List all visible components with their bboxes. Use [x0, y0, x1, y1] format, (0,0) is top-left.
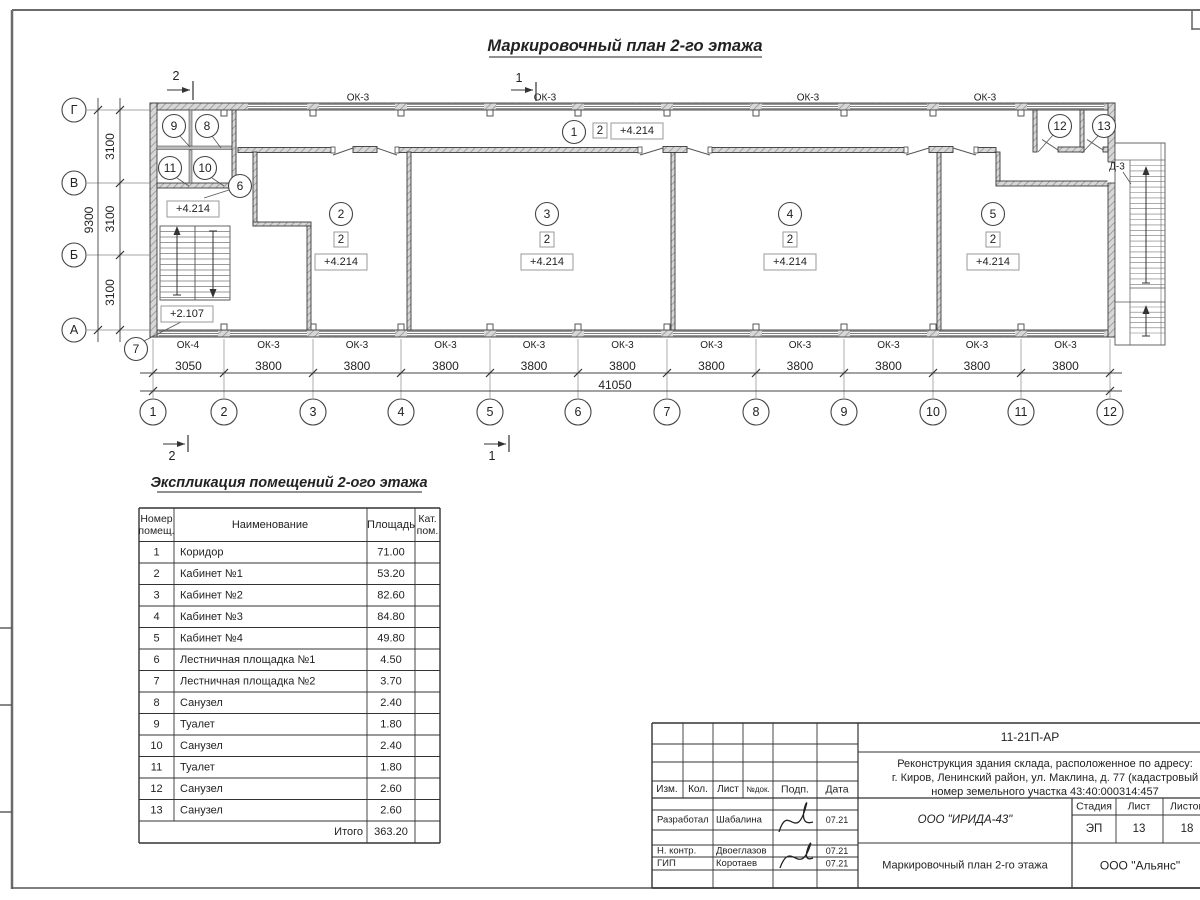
window-mark: ОК-3	[966, 340, 989, 351]
person-date: 07.21	[826, 815, 849, 825]
room-area-cell: 3.70	[380, 675, 401, 687]
door-lintel	[663, 147, 687, 153]
room-name-cell: Санузел	[180, 697, 223, 709]
room-area-cell: 1.80	[380, 718, 401, 730]
leader-line	[204, 190, 229, 198]
partition-thin	[189, 150, 192, 183]
door-jamb	[395, 147, 399, 153]
window-mark: ОК-3	[1054, 340, 1077, 351]
mullion-post	[753, 110, 759, 116]
room-num-cell: 7	[153, 675, 159, 687]
partition	[157, 183, 236, 188]
window-mark: ОК-3	[611, 340, 634, 351]
room-num-cell: 12	[150, 783, 162, 795]
axis-letter: В	[70, 176, 78, 190]
mullion-post	[930, 324, 936, 330]
room-name-cell: Санузел	[180, 740, 223, 752]
col-header: Кат.	[418, 513, 436, 525]
axis-number: 6	[575, 405, 582, 419]
axis-number: 10	[926, 405, 940, 419]
rev-header: Изм.	[656, 784, 677, 795]
page-title: Маркировочный план 2-го этажа	[487, 37, 762, 55]
section-arrowhead	[525, 87, 533, 93]
axis-letter: Г	[71, 103, 78, 117]
window-mark: ОК-3	[257, 340, 280, 351]
room-area-cell: 84.80	[377, 611, 405, 623]
elevation-value: +4.214	[620, 125, 654, 137]
room-area-cell: 2.40	[380, 740, 401, 752]
col-header: помещ.	[138, 525, 174, 537]
rev-header: Подп.	[781, 784, 809, 796]
category-value: 2	[990, 234, 996, 246]
dim-value: 3800	[698, 359, 725, 373]
person-name: Шабалина	[716, 815, 763, 826]
mullion-post	[753, 324, 759, 330]
room-name-cell: Санузел	[180, 783, 223, 795]
customer-org: ООО "Альянс"	[1100, 859, 1180, 873]
category-value: 2	[787, 234, 793, 246]
window-mark: ОК-3	[347, 93, 370, 104]
room-area-cell: 82.60	[377, 589, 405, 601]
room-num-cell: 4	[153, 611, 159, 623]
drawing-title: Маркировочный план 2-го этажа	[882, 860, 1048, 872]
person-date: 07.21	[826, 859, 849, 869]
col-header: Номер	[140, 513, 172, 525]
window-mark: ОК-3	[346, 340, 369, 351]
axis-number: 9	[841, 405, 848, 419]
partition	[1103, 147, 1108, 152]
person-name: Коротаев	[716, 858, 757, 869]
room-name-cell: Кабинет №3	[180, 611, 243, 623]
col-header: пом.	[417, 525, 439, 537]
partition	[996, 152, 1000, 185]
stage-header: Листов	[1170, 801, 1200, 813]
section-mark-number: 2	[169, 449, 176, 463]
sheet-num: 13	[1133, 823, 1146, 835]
category-value: 2	[338, 234, 344, 246]
mullion-post	[664, 110, 670, 116]
stage-header: Лист	[1128, 801, 1151, 813]
door-lintel	[929, 147, 953, 153]
mullion-post	[398, 324, 404, 330]
mullion-post	[841, 110, 847, 116]
room-number: 11	[164, 161, 177, 175]
window-mark: ОК-3	[797, 93, 820, 104]
partition	[1033, 110, 1037, 152]
generated-drawing: Маркировочный план 2-го этажаЭкспликация…	[62, 37, 1200, 888]
leader-line	[1038, 135, 1053, 152]
door-leaf	[333, 148, 353, 155]
person-role: ГИП	[657, 858, 676, 869]
axis-number: 4	[398, 405, 405, 419]
section-arrowhead	[498, 441, 506, 447]
section-mark-number: 2	[173, 69, 180, 83]
corridor-wall	[976, 148, 996, 153]
door-lintel	[353, 147, 377, 153]
room-number: 8	[204, 119, 211, 133]
window-mark: ОК-4	[177, 340, 200, 351]
room-number: 12	[1053, 119, 1067, 133]
person-date: 07.21	[826, 846, 849, 856]
door-leaf	[687, 148, 710, 155]
dim-value: 3800	[344, 359, 371, 373]
elevation-value: +4.214	[976, 256, 1010, 268]
room-num-cell: 11	[151, 761, 162, 773]
mullion-post	[487, 324, 493, 330]
partition-thin	[189, 110, 192, 146]
room-area-cell: 71.00	[377, 546, 405, 558]
window-mark: ОК-3	[434, 340, 457, 351]
mullion-post	[487, 110, 493, 116]
schedule-title: Экспликация помещений 2-ого этажа	[150, 475, 427, 491]
drawing-sheet: Маркировочный план 2-го этажаЭкспликация…	[0, 0, 1200, 900]
room-number: 7	[133, 342, 140, 356]
corridor-wall	[397, 148, 640, 153]
section-arrowhead	[177, 441, 185, 447]
dim-value: 3800	[787, 359, 814, 373]
window-mark: ОК-3	[974, 93, 997, 104]
section-mark-number: 1	[489, 449, 496, 463]
col-header: Площадь	[367, 519, 415, 531]
room-area-cell: 2.60	[380, 804, 401, 816]
window-mark: ОК-3	[523, 340, 546, 351]
partition	[253, 222, 311, 226]
room-name-cell: Санузел	[180, 804, 223, 816]
door-jamb	[638, 147, 642, 153]
project-name: номер земельного участка 43:40:000314:45…	[931, 786, 1159, 798]
room-number: 1	[571, 125, 578, 139]
dim-total-value: 41050	[598, 378, 632, 392]
axis-number: 1	[150, 405, 157, 419]
rev-header: №док.	[746, 785, 769, 794]
category-value: 2	[544, 234, 550, 246]
dim-value: 3100	[103, 279, 117, 306]
room-number: 13	[1097, 119, 1111, 133]
leader-line	[180, 136, 190, 147]
room-num-cell: 5	[153, 632, 159, 644]
door-jamb	[904, 147, 908, 153]
room-name-cell: Лестничная площадка №2	[180, 675, 315, 687]
person-role: Н. контр.	[657, 846, 696, 857]
room-num-cell: 3	[153, 589, 159, 601]
door-mark: Д-3	[1109, 162, 1125, 173]
total-label: Итого	[334, 826, 363, 838]
axis-number: 7	[664, 405, 671, 419]
corridor-wall	[710, 148, 906, 153]
room-number: 3	[544, 207, 551, 221]
window-mark: ОК-3	[534, 93, 557, 104]
elevation-value: +4.214	[324, 256, 358, 268]
mullion-post	[398, 110, 404, 116]
ext-stair-outline	[1115, 143, 1165, 345]
mullion-post	[1018, 324, 1024, 330]
axis-number: 2	[221, 405, 228, 419]
dim-value: 3050	[175, 359, 202, 373]
mullion-post	[575, 110, 581, 116]
room-number: 6	[237, 179, 244, 193]
signature-scribble	[780, 843, 813, 868]
door-leaf	[640, 148, 663, 155]
elevation-value: +4.214	[773, 256, 807, 268]
window-mark: ОК-3	[789, 340, 812, 351]
mullion-post	[930, 110, 936, 116]
elevation-value: +4.214	[176, 203, 210, 215]
room-num-cell: 9	[153, 718, 159, 730]
rev-header: Лист	[717, 784, 739, 795]
dim-value: 3800	[609, 359, 636, 373]
door-jamb	[974, 147, 978, 153]
col-header: Наименование	[232, 519, 308, 531]
dim-value: 3100	[103, 205, 117, 232]
room-name-cell: Лестничная площадка №1	[180, 654, 315, 666]
stage-value: ЭП	[1086, 823, 1103, 835]
project-name: Реконструкция здания склада, расположенн…	[897, 758, 1193, 770]
floor-plan-drawing: Маркировочный план 2-го этажаЭкспликация…	[0, 0, 1200, 900]
corridor-wall	[238, 148, 333, 153]
dim-value: 3800	[1052, 359, 1079, 373]
partition	[1058, 147, 1084, 152]
dim-value: 3800	[432, 359, 459, 373]
room-num-cell: 2	[153, 568, 159, 580]
mullion-post	[310, 110, 316, 116]
room-name-cell: Кабинет №1	[180, 568, 243, 580]
room-area-cell: 49.80	[377, 632, 405, 644]
mullion-post	[575, 324, 581, 330]
partition-thin	[157, 146, 236, 150]
partition	[1080, 110, 1084, 152]
room-num-cell: 13	[150, 804, 162, 816]
wall-west	[150, 103, 157, 337]
door-jamb	[331, 147, 335, 153]
room-num-cell: 10	[150, 740, 162, 752]
category-value: 2	[597, 125, 603, 137]
room-number: 5	[990, 207, 997, 221]
dim-value: 3800	[255, 359, 282, 373]
stair-arrowhead	[210, 289, 217, 298]
window-mark: ОК-3	[877, 340, 900, 351]
project-name: г. Киров, Ленинский район, ул. Маклина, …	[892, 772, 1198, 784]
room-number: 10	[198, 161, 212, 175]
axis-letter: Б	[70, 248, 78, 262]
room-area-cell: 53.20	[377, 568, 405, 580]
room-name-cell: Туалет	[180, 761, 215, 773]
dim-value: 3800	[964, 359, 991, 373]
window-mark: ОК-3	[700, 340, 723, 351]
room-num-cell: 6	[153, 654, 159, 666]
room-area-cell: 1.80	[380, 761, 401, 773]
partition	[407, 152, 411, 330]
axis-letter: А	[70, 323, 79, 337]
partition	[937, 153, 941, 331]
elevation-value: +4.214	[530, 256, 564, 268]
room-area-cell: 2.40	[380, 697, 401, 709]
room-name-cell: Кабинет №2	[180, 589, 243, 601]
partition	[671, 153, 675, 331]
axis-number: 3	[310, 405, 317, 419]
person-name: Двоеглазов	[716, 846, 767, 857]
room-name-cell: Кабинет №4	[180, 632, 243, 644]
room-number: 4	[787, 207, 794, 221]
partition	[253, 152, 257, 226]
rev-header: Дата	[825, 784, 848, 796]
mullion-post	[841, 324, 847, 330]
room-name-cell: Коридор	[180, 546, 223, 558]
axis-number: 5	[487, 405, 494, 419]
mullion-post	[221, 324, 227, 330]
mullion-post	[221, 110, 227, 116]
room-area-cell: 2.60	[380, 783, 401, 795]
room-number: 2	[338, 207, 345, 221]
mullion-post	[1018, 110, 1024, 116]
partition	[307, 226, 311, 330]
partition	[996, 181, 1108, 186]
room-num-cell: 1	[153, 546, 159, 558]
stage-header: Стадия	[1076, 801, 1112, 813]
room-num-cell: 8	[153, 697, 159, 709]
room-number: 9	[171, 119, 178, 133]
axis-number: 11	[1015, 405, 1028, 419]
section-arrowhead	[182, 87, 190, 93]
dim-total-value: 9300	[82, 206, 96, 233]
door-jamb	[708, 147, 712, 153]
designer-org: ООО "ИРИДА-43"	[918, 814, 1014, 826]
room-area-cell: 4.50	[380, 654, 401, 666]
stair-arrowhead	[174, 226, 181, 235]
axis-number: 12	[1103, 405, 1117, 419]
dim-value: 3800	[875, 359, 902, 373]
sheet-total: 18	[1181, 823, 1194, 835]
wall-east	[1108, 103, 1115, 337]
door-leaf	[377, 148, 397, 155]
person-role: Разработал	[657, 815, 709, 826]
dim-value: 3800	[521, 359, 548, 373]
section-mark-number: 1	[516, 71, 523, 85]
elevation-value: +2.107	[170, 308, 204, 320]
axis-number: 8	[753, 405, 760, 419]
mullion-post	[664, 324, 670, 330]
room-name-cell: Туалет	[180, 718, 215, 730]
dim-value: 3100	[103, 133, 117, 160]
doc-code: 11-21П-АР	[1001, 730, 1059, 744]
rev-header: Кол.	[688, 784, 708, 795]
door-leaf	[906, 148, 929, 155]
total-value: 363.20	[374, 826, 408, 838]
door-leaf	[953, 148, 976, 155]
signature-scribble	[779, 803, 813, 832]
